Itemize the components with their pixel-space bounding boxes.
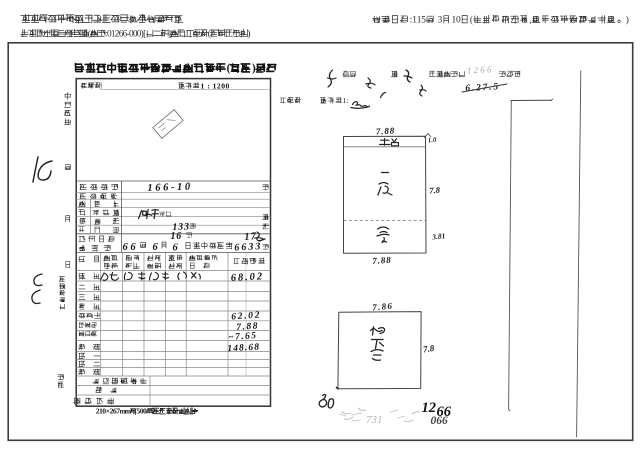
svg-text:(: ( [208,28,211,39]
svg-text:7.86: 7.86 [372,301,394,313]
svg-text:16: 16 [171,231,183,242]
svg-text:3: 3 [438,15,443,25]
svg-text:7.88: 7.88 [376,125,396,136]
svg-text:7.8: 7.8 [422,343,435,355]
svg-text:1.0: 1.0 [428,137,438,145]
svg-text:7.8: 7.8 [429,185,441,196]
svg-text:m: m [125,407,132,416]
svg-text:6: 6 [173,243,179,254]
svg-text:): ) [626,14,629,25]
svg-text:0: 0 [456,15,461,25]
svg-text:~7.65: ~7.65 [228,331,258,343]
svg-text:(: ( [470,14,473,25]
svg-text:68.02: 68.02 [231,271,265,284]
svg-text:12: 12 [422,400,437,416]
svg-text:): ) [247,28,250,39]
svg-text:(: ( [88,28,91,39]
svg-text:5: 5 [421,15,426,25]
svg-text:166-10: 166-10 [147,181,193,194]
svg-text:6633: 6633 [234,241,263,253]
svg-text:]: ] [168,29,171,39]
svg-text:0: 0 [143,407,147,416]
svg-text:066: 066 [431,415,449,427]
svg-text:6: 6 [153,242,159,253]
svg-text:148.68: 148.68 [227,343,260,355]
svg-text:1266: 1266 [467,64,494,75]
svg-text:731: 731 [366,414,383,426]
svg-text:1 : 1200: 1 : 1200 [201,81,230,90]
svg-text:,: , [529,15,531,25]
svg-text:): ) [252,63,256,75]
svg-text::: : [346,96,348,105]
svg-text:3.81: 3.81 [431,231,446,241]
svg-text:(: ( [227,63,231,75]
svg-text:66: 66 [123,242,139,253]
svg-text:[: [ [143,29,146,39]
svg-text:7.88: 7.88 [372,255,392,266]
